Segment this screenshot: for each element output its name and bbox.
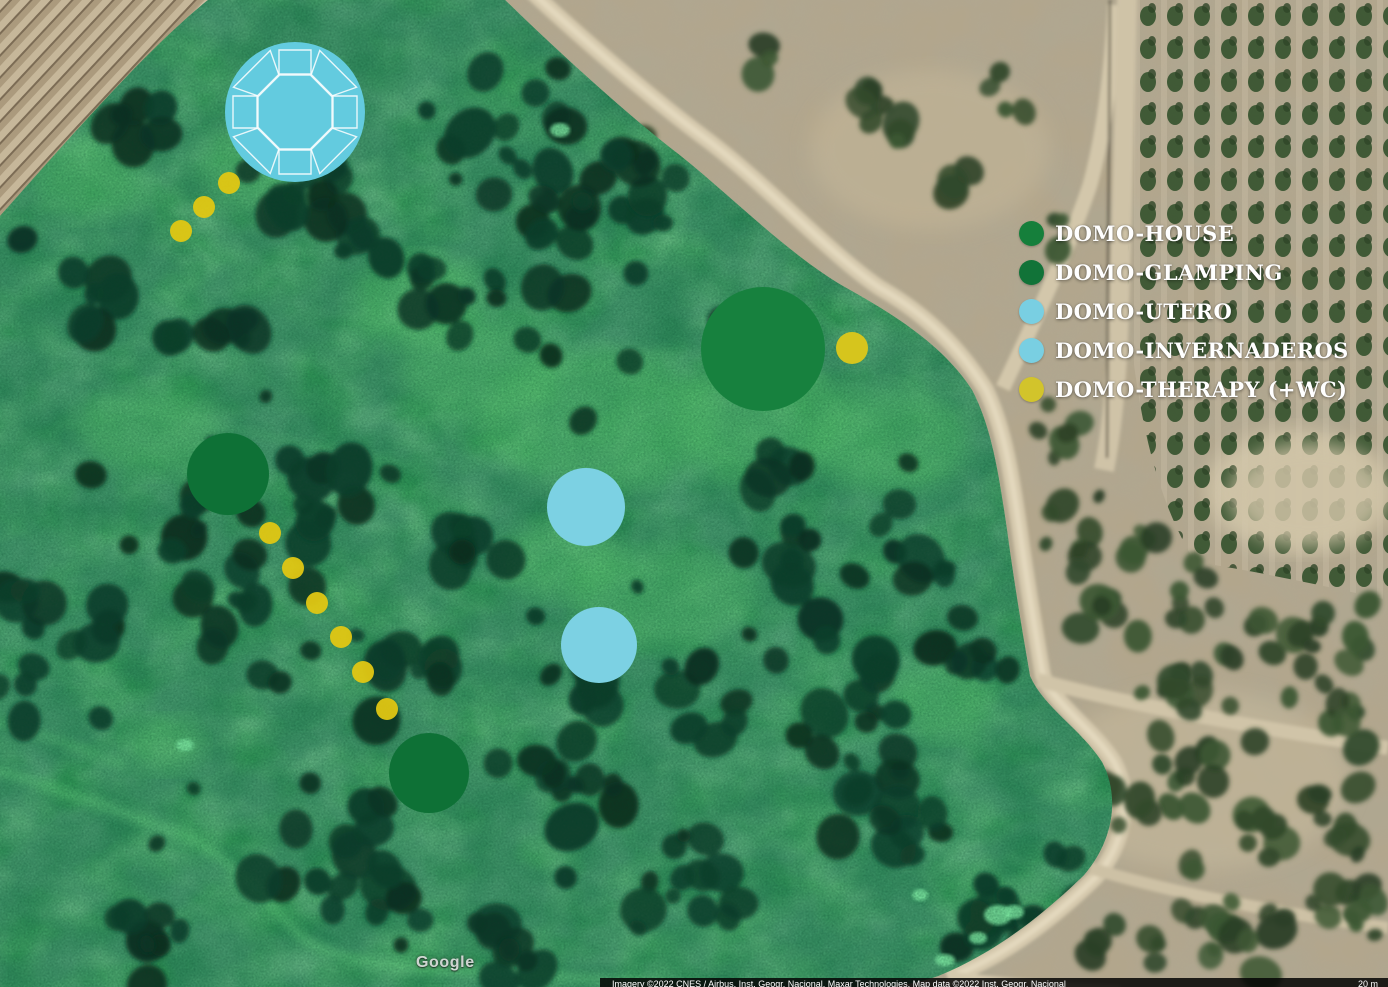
legend-item-domo-therapy: DOMO-THERAPY (+WC)	[1019, 374, 1349, 405]
therapy-dot-lower_trail-1[interactable]	[259, 522, 281, 544]
legend-label-domo-house: DOMO-HOUSE	[1055, 221, 1234, 246]
marker-domo-house-main[interactable]	[701, 287, 825, 411]
satellite-map[interactable]: DOMO-HOUSEDOMO-GLAMPINGDOMO-UTERODOMO-IN…	[0, 0, 1388, 987]
therapy-dot-lower_trail-4[interactable]	[330, 626, 352, 648]
legend-item-domo-utero: DOMO-UTERO	[1019, 296, 1349, 327]
scale-label: 20 m	[1358, 979, 1378, 987]
therapy-dot-lower_trail-2[interactable]	[282, 557, 304, 579]
legend-label-domo-therapy: DOMO-THERAPY (+WC)	[1055, 377, 1347, 402]
marker-domo-glamping-south[interactable]	[389, 733, 469, 813]
marker-domo-glamping-north[interactable]	[187, 433, 269, 515]
therapy-dot-lower_trail-6[interactable]	[376, 698, 398, 720]
attribution-text: Imagery ©2022 CNES / Airbus, Inst. Geogr…	[612, 979, 1066, 987]
attribution-bar: Imagery ©2022 CNES / Airbus, Inst. Geogr…	[600, 978, 1388, 987]
legend-label-domo-glamping: DOMO-GLAMPING	[1055, 260, 1283, 285]
legend-item-domo-invernaderos: DOMO-INVERNADEROS	[1019, 335, 1349, 366]
legend-item-domo-glamping: DOMO-GLAMPING	[1019, 257, 1349, 288]
legend-swatch-domo-house	[1019, 221, 1044, 246]
legend-label-domo-utero: DOMO-UTERO	[1055, 299, 1232, 324]
legend-label-domo-invernaderos: DOMO-INVERNADEROS	[1055, 338, 1349, 363]
marker-domo-invernadero-south[interactable]	[561, 607, 637, 683]
marker-domo-invernadero-north[interactable]	[547, 468, 625, 546]
therapy-dot-upper_trail-3[interactable]	[170, 220, 192, 242]
legend-swatch-domo-therapy	[1019, 377, 1044, 402]
marker-domo-utero-plan[interactable]	[225, 42, 365, 182]
satellite-imagery[interactable]	[0, 0, 1388, 987]
google-logo[interactable]: Google	[416, 954, 475, 972]
therapy-dot-upper_trail-1[interactable]	[218, 172, 240, 194]
therapy-dot-lower_trail-3[interactable]	[306, 592, 328, 614]
legend-swatch-domo-invernaderos	[1019, 338, 1044, 363]
map-legend: DOMO-HOUSEDOMO-GLAMPINGDOMO-UTERODOMO-IN…	[1019, 218, 1349, 405]
marker-domo-therapy-wc[interactable]	[836, 332, 868, 364]
legend-item-domo-house: DOMO-HOUSE	[1019, 218, 1349, 249]
therapy-dot-upper_trail-2[interactable]	[193, 196, 215, 218]
therapy-dot-lower_trail-5[interactable]	[352, 661, 374, 683]
legend-swatch-domo-glamping	[1019, 260, 1044, 285]
legend-swatch-domo-utero	[1019, 299, 1044, 324]
